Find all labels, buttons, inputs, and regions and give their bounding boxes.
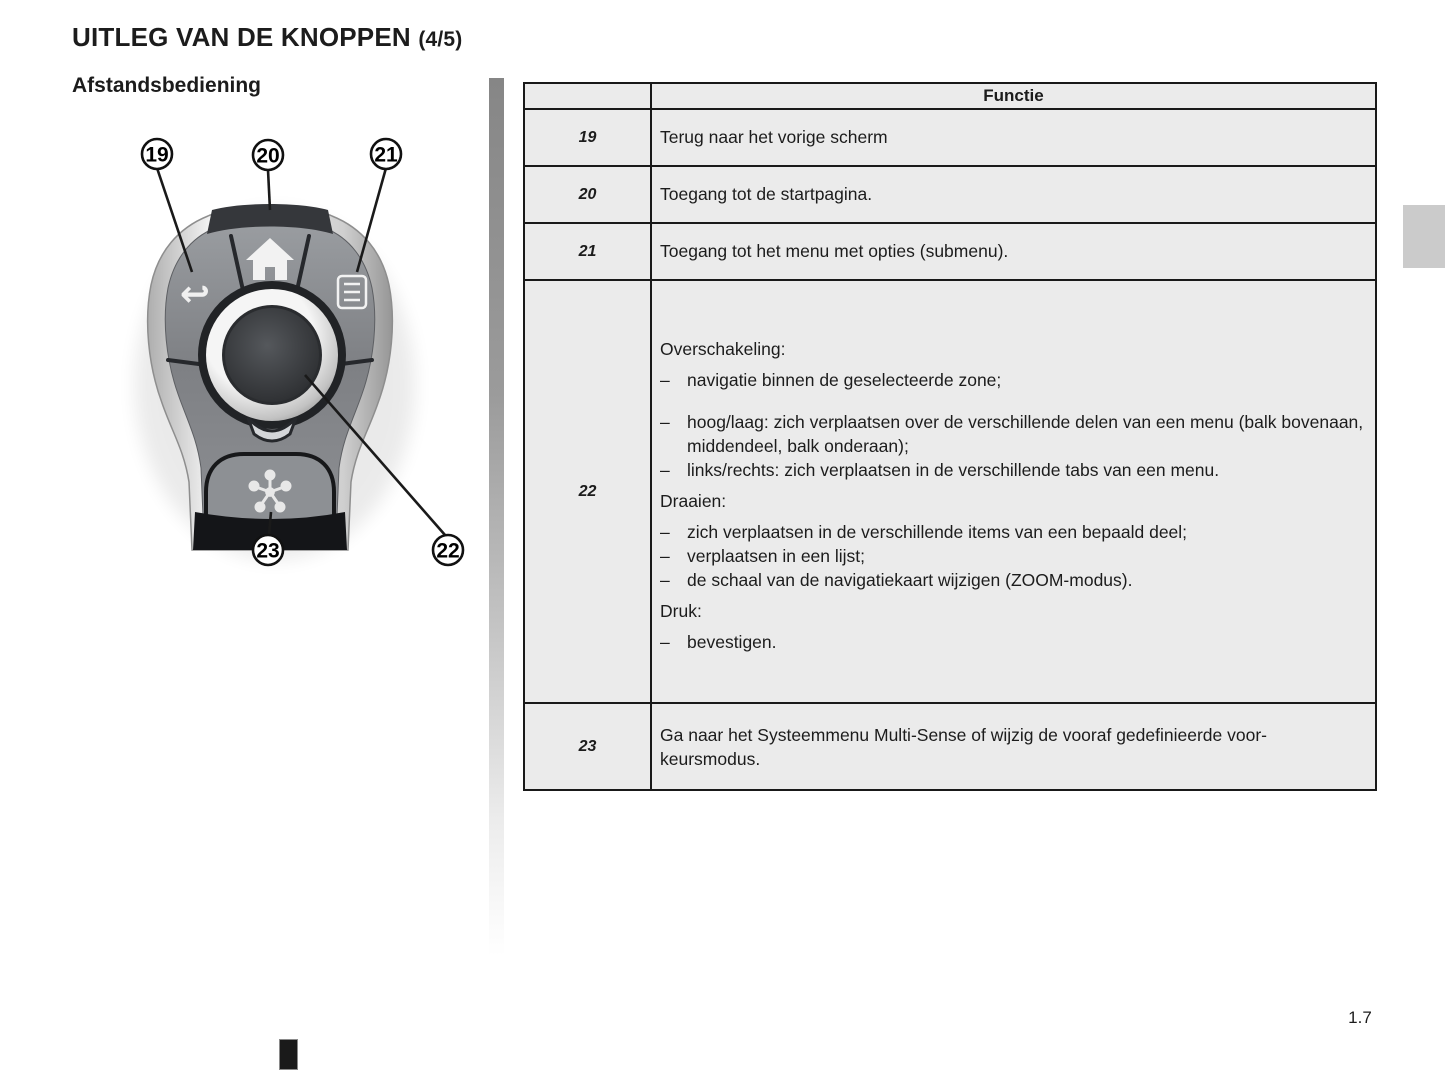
remote-control-illustration: ↩: [100, 120, 490, 590]
row-23-number: 23: [525, 704, 650, 789]
callout-23-label: 23: [256, 540, 279, 563]
function-table: Functie 19 Terug naar het vorige scherm …: [523, 82, 1377, 791]
page-subtitle: Afstandsbediening: [72, 74, 261, 98]
callout-21: 21: [371, 139, 401, 169]
callout-23: 23: [253, 535, 283, 565]
header-functie: Functie: [652, 84, 1375, 108]
bullet-text: hoog/laag: zich verplaatsen over de vers…: [687, 410, 1365, 458]
row-20-number: 20: [525, 167, 650, 222]
row-22-label-draaien: Draaien:: [660, 489, 1365, 513]
bullet-dash: –: [660, 458, 687, 482]
bullet-text: verplaatsen in een lijst;: [687, 544, 1365, 568]
row-22-bullet: – navigatie binnen de geselecteerde zone…: [660, 368, 1365, 392]
row-19-number: 19: [525, 110, 650, 165]
back-arrow-icon: ↩: [180, 274, 210, 315]
row-22-number: 22: [525, 281, 650, 702]
row-22-content: Overschakeling: – navigatie binnen de ge…: [652, 281, 1375, 702]
bullet-dash: –: [660, 568, 687, 592]
rotary-knob[interactable]: [198, 281, 346, 429]
bullet-dash: –: [660, 368, 687, 392]
row-22-bullet: – zich verplaatsen in de verschillende i…: [660, 520, 1365, 544]
vertical-separator-strip: [489, 78, 504, 983]
bullet-text: zich verplaatsen in de verschillende ite…: [687, 520, 1365, 544]
callout-19: 19: [142, 139, 172, 169]
page-title-counter: (4/5): [418, 28, 462, 51]
row-21-number: 21: [525, 224, 650, 279]
row-22-bullet: – verplaatsen in een lijst;: [660, 544, 1365, 568]
row-22-bullet: – links/rechts: zich verplaatsen in de v…: [660, 458, 1365, 482]
knob-surface: [225, 308, 319, 402]
page-title-text: UITLEG VAN DE KNOPPEN: [72, 22, 411, 52]
row-22-label-overschakeling: Overschakeling:: [660, 337, 1365, 361]
row-22-bullet: – de schaal van de navigatiekaart wijzig…: [660, 568, 1365, 592]
callout-22: 22: [433, 535, 463, 565]
print-registration-marker: [279, 1039, 298, 1070]
back-button[interactable]: ↩: [180, 274, 210, 315]
chapter-edge-tab: [1403, 205, 1445, 268]
bullet-text: bevestigen.: [687, 630, 1365, 654]
callout-20: 20: [253, 140, 283, 170]
row-20-text: Toegang tot de startpagina.: [652, 167, 1375, 222]
row-22-label-druk: Druk:: [660, 599, 1365, 623]
page-number: 1.7: [1330, 1008, 1390, 1028]
bullet-dash: –: [660, 520, 687, 544]
row-22-bullet: – hoog/laag: zich verplaatsen over de ve…: [660, 410, 1365, 458]
callout-21-label: 21: [374, 144, 398, 167]
header-empty-cell: [525, 84, 650, 108]
bullet-text: de schaal van de navigatiekaart wijzigen…: [687, 568, 1365, 592]
callout-22-label: 22: [436, 540, 459, 563]
row-22-bullet: – bevestigen.: [660, 630, 1365, 654]
bullet-text: links/rechts: zich verplaatsen in de ver…: [687, 458, 1365, 482]
row-23-text: Ga naar het Systeemmenu Multi-Sense of w…: [652, 704, 1375, 789]
remote-control-svg: ↩: [100, 120, 490, 590]
row-21-text: Toegang tot het menu met opties (submenu…: [652, 224, 1375, 279]
row-19-text: Terug naar het vorige scherm: [652, 110, 1375, 165]
callout-20-label: 20: [256, 145, 279, 168]
bullet-dash: –: [660, 630, 687, 654]
bullet-dash: –: [660, 544, 687, 568]
page-title: UITLEG VAN DE KNOPPEN (4/5): [72, 22, 463, 53]
callout-19-label: 19: [145, 144, 168, 167]
bullet-dash: –: [660, 410, 687, 458]
bullet-text: navigatie binnen de geselecteerde zone;: [687, 368, 1365, 392]
